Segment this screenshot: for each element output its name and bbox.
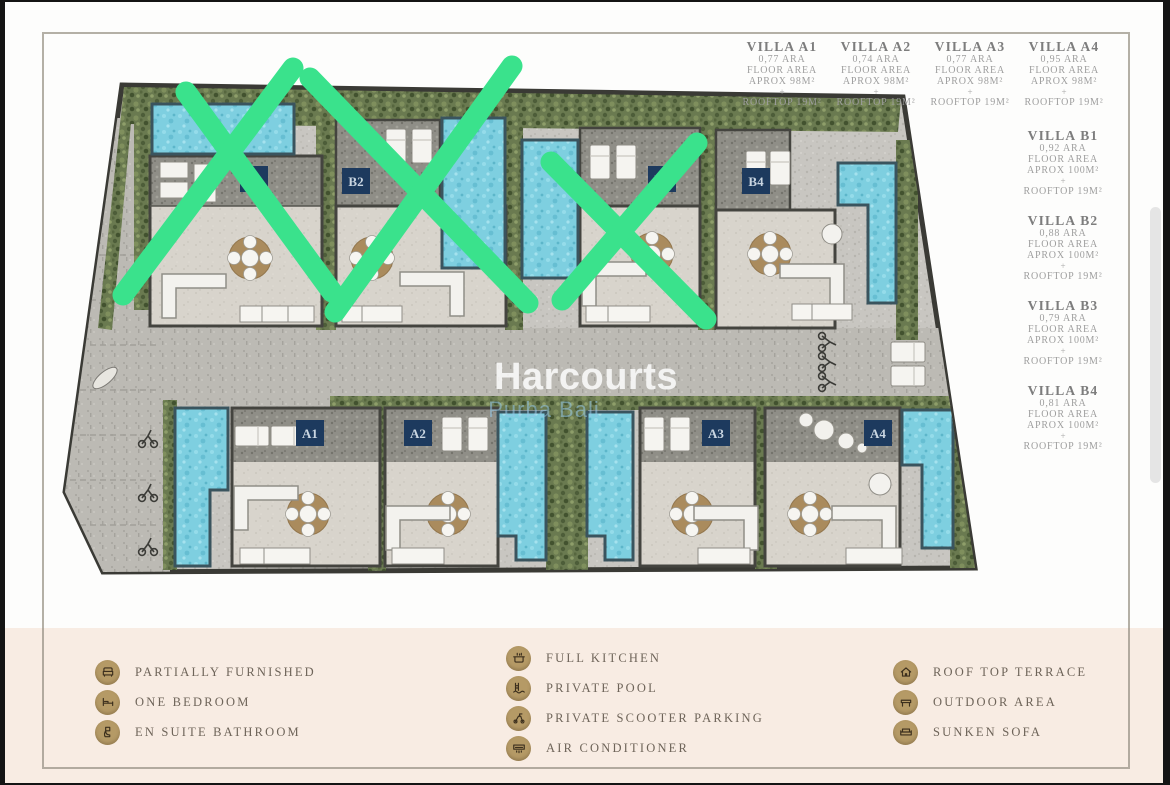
legend-item: ROOF TOP TERRACE	[893, 657, 1087, 687]
villa-info-b1: VILLA B1 0,92 ARA FLOOR AREA APROX 100M²…	[1010, 129, 1116, 197]
villa-label-a4: A4	[864, 420, 892, 446]
villa-info-a1: VILLA A1 0,77 ARA FLOOR AREA APROX 98M² …	[737, 40, 827, 108]
svg-text:B4: B4	[748, 174, 764, 189]
central-driveway	[95, 328, 975, 406]
villa-info-a3: VILLA A3 0,77 ARA FLOOR AREA APROX 98M² …	[925, 40, 1015, 108]
legend-label: PRIVATE POOL	[546, 681, 658, 696]
legend-label: AIR CONDITIONER	[546, 741, 689, 756]
villa-info-b4: VILLA B4 0,81 ARA FLOOR AREA APROX 100M²…	[1010, 384, 1116, 452]
legend-label: FULL KITCHEN	[546, 651, 661, 666]
villa-unit-a1	[175, 408, 380, 566]
legend-item: ONE BEDROOM	[95, 687, 316, 717]
scrollbar-thumb[interactable]	[1150, 207, 1161, 483]
villa-unit-a4	[765, 408, 953, 566]
bench-icon	[893, 690, 918, 715]
armchair-icon	[95, 660, 120, 685]
toilet-icon	[95, 720, 120, 745]
scooter-icon	[506, 706, 531, 731]
legend-column-3: ROOF TOP TERRACE OUTDOOR AREA SUNKEN SOF…	[893, 657, 1087, 747]
house-icon	[893, 660, 918, 685]
legend-item: PRIVATE SCOOTER PARKING	[506, 703, 764, 733]
legend-label: ROOF TOP TERRACE	[933, 665, 1087, 680]
screenshot-stage: B1 B2 B3 B4 A1 A2 A3 A4	[0, 0, 1170, 785]
legend-item: FULL KITCHEN	[506, 643, 764, 673]
svg-text:A1: A1	[302, 426, 318, 441]
legend-label: OUTDOOR AREA	[933, 695, 1057, 710]
air-conditioner-icon	[506, 736, 531, 761]
legend-item: SUNKEN SOFA	[893, 717, 1087, 747]
villa-info-b2: VILLA B2 0,88 ARA FLOOR AREA APROX 100M²…	[1010, 214, 1116, 282]
kitchen-pot-icon	[506, 646, 531, 671]
legend-label: PRIVATE SCOOTER PARKING	[546, 711, 764, 726]
villa-unit-a3	[587, 408, 758, 566]
legend-column-2: FULL KITCHEN PRIVATE POOL PRIVATE SCOOTE…	[506, 643, 764, 763]
bed-icon	[95, 690, 120, 715]
villa-label-a1: A1	[296, 420, 324, 446]
svg-text:A2: A2	[410, 426, 426, 441]
legend-item: PARTIALLY FURNISHED	[95, 657, 316, 687]
villa-info-a4: VILLA A4 0,95 ARA FLOOR AREA APROX 98M² …	[1019, 40, 1109, 108]
villa-info-a2: VILLA A2 0,74 ARA FLOOR AREA APROX 98M² …	[831, 40, 921, 108]
villa-label-a2: A2	[404, 420, 432, 446]
svg-text:A3: A3	[708, 426, 724, 441]
villa-info-b3: VILLA B3 0,79 ARA FLOOR AREA APROX 100M²…	[1010, 299, 1116, 367]
legend-label: SUNKEN SOFA	[933, 725, 1042, 740]
svg-text:A4: A4	[870, 426, 886, 441]
villa-info-top-row: VILLA A1 0,77 ARA FLOOR AREA APROX 98M² …	[737, 40, 1109, 108]
villa-label-a3: A3	[702, 420, 730, 446]
legend-item: OUTDOOR AREA	[893, 687, 1087, 717]
legend-label: EN SUITE BATHROOM	[135, 725, 301, 740]
sofa-icon	[893, 720, 918, 745]
villa-info-side-column: VILLA B1 0,92 ARA FLOOR AREA APROX 100M²…	[1010, 129, 1116, 469]
pool-ladder-icon	[506, 676, 531, 701]
villa-label-b4: B4	[742, 168, 770, 194]
svg-text:B2: B2	[348, 174, 363, 189]
legend-item: PRIVATE POOL	[506, 673, 764, 703]
legend-item: AIR CONDITIONER	[506, 733, 764, 763]
villa-label-b2: B2	[342, 168, 370, 194]
villa-unit-b2	[336, 118, 506, 326]
legend-column-1: PARTIALLY FURNISHED ONE BEDROOM EN SUITE…	[95, 657, 316, 747]
legend-label: PARTIALLY FURNISHED	[135, 665, 316, 680]
legend-item: EN SUITE BATHROOM	[95, 717, 316, 747]
legend-label: ONE BEDROOM	[135, 695, 251, 710]
